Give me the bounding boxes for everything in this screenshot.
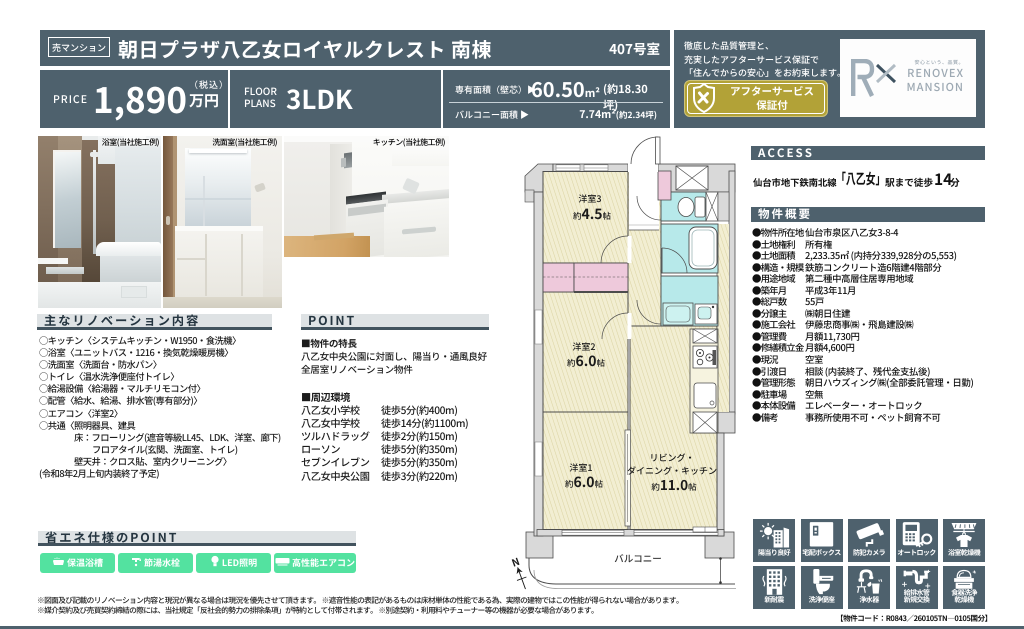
svg-text:バルコニー: バルコニー	[614, 551, 662, 565]
svg-text:N: N	[509, 553, 521, 570]
svg-text:リビング・: リビング・	[649, 451, 694, 464]
